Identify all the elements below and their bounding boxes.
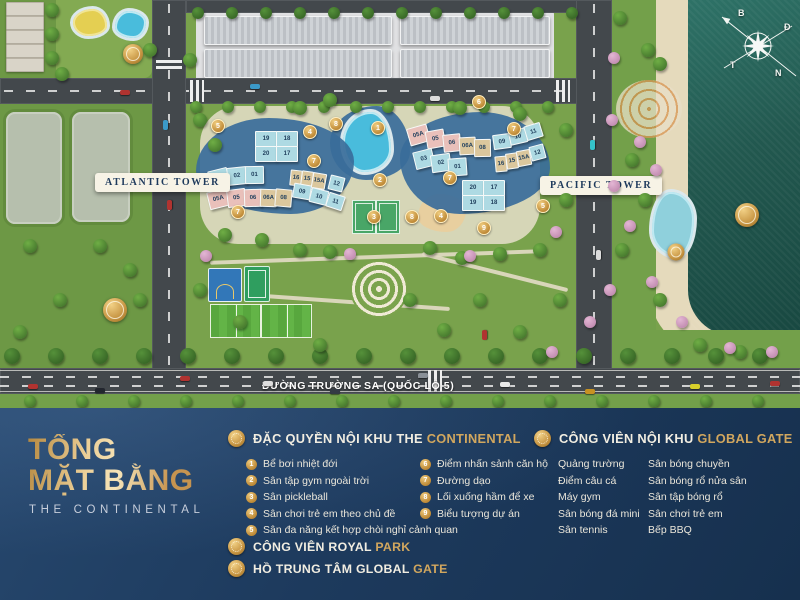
tree-icon	[323, 93, 337, 107]
compass-icon: B Đ N T	[712, 6, 798, 86]
tree-icon	[53, 293, 67, 307]
tree-icon	[293, 101, 307, 115]
labyrinth-plaza	[350, 260, 408, 318]
tree-icon	[403, 293, 417, 307]
unit-block-20: 20	[462, 180, 484, 196]
tree-icon	[550, 226, 562, 238]
tree-icon	[615, 243, 629, 257]
tree-icon	[620, 348, 636, 364]
amenity-marker-5: 5	[536, 199, 550, 213]
circular-plaza	[616, 80, 682, 138]
legend-item-number: 3	[246, 492, 257, 503]
amenity-marker-9: 9	[477, 221, 491, 235]
global-gate-column-1: Quảng trườngĐiểm câu cáMáy gymSân bóng đ…	[558, 458, 640, 536]
tree-icon	[553, 293, 567, 307]
poster-subtitle: THE CONTINENTAL	[29, 504, 205, 516]
unit-block-17: 17	[276, 146, 298, 162]
unit-block-19: 19	[462, 195, 484, 211]
blue-pool	[115, 11, 146, 38]
road-name-label: ĐƯỜNG TRƯỜNG SA (QUỐC LỘ 5)	[262, 380, 454, 392]
legend-item-label: Sân bóng rổ nửa sân	[648, 475, 747, 487]
tree-icon	[624, 220, 636, 232]
global-gate-column-2: Sân bóng chuyềnSân bóng rổ nửa sânSân tậ…	[648, 458, 747, 536]
tree-icon	[700, 395, 712, 407]
tree-icon	[498, 7, 510, 19]
tree-icon	[766, 346, 778, 358]
unit-block-08: 08	[474, 139, 491, 157]
tree-icon	[323, 245, 337, 259]
tree-icon	[444, 348, 460, 364]
tree-icon	[648, 395, 660, 407]
legend-item-label: Sân chơi trẻ em theo chủ đề	[263, 508, 395, 520]
section-global-gate-park-heading: CÔNG VIÊN NỘI KHU GLOBAL GATE	[534, 430, 793, 447]
warehouse	[204, 49, 392, 78]
tree-icon	[23, 239, 37, 253]
tree-icon	[218, 228, 232, 242]
coin-icon	[228, 538, 245, 555]
unit-block-17: 17	[483, 180, 505, 196]
amenity-marker-5: 5	[211, 119, 225, 133]
legend-item-label: Quảng trường	[558, 458, 640, 470]
tree-icon	[128, 395, 140, 407]
tree-icon	[233, 315, 247, 329]
compass-south: N	[775, 68, 782, 78]
unit-block-11: 11	[325, 192, 346, 212]
tree-icon	[646, 276, 658, 288]
tree-icon	[559, 123, 573, 137]
legend-item-number: 9	[420, 508, 431, 519]
right-vertical-road	[576, 0, 612, 394]
tree-icon	[584, 316, 596, 328]
legend-item-label: Sân chơi trẻ em	[648, 508, 747, 520]
legend-item-label: Bể bơi nhiệt đới	[263, 458, 337, 470]
tree-icon	[232, 395, 244, 407]
tree-icon	[45, 51, 59, 65]
tree-icon	[566, 7, 578, 19]
basketball-court	[208, 268, 242, 302]
tree-icon	[356, 348, 372, 364]
coin-icon	[228, 430, 245, 447]
tree-icon	[693, 338, 707, 352]
tree-icon	[608, 180, 620, 192]
tree-icon	[752, 395, 764, 407]
site-map: 19182017030201161515A1205A050606A0809101…	[0, 0, 800, 408]
tree-icon	[464, 250, 476, 262]
car-icon	[770, 381, 780, 386]
tree-icon	[638, 193, 652, 207]
car-icon	[430, 96, 440, 101]
legend-item-label: Sân pickleball	[263, 491, 328, 503]
amenity-marker-1: 1	[371, 121, 385, 135]
car-icon	[167, 200, 172, 210]
tree-icon	[255, 233, 269, 247]
roadside-grass	[0, 394, 800, 408]
rowhouse-block	[6, 58, 44, 72]
legend-item-label: Sân tennis	[558, 524, 640, 536]
yellow-pool	[73, 9, 107, 36]
car-icon	[180, 376, 190, 381]
tree-icon	[293, 243, 307, 257]
coin-icon	[534, 430, 551, 447]
rowhouse-block	[6, 30, 44, 44]
legend-item-label: Sân đa năng kết hợp chòi nghỉ cảnh quan	[263, 524, 458, 536]
tree-icon	[608, 52, 620, 64]
tree-icon	[400, 348, 416, 364]
unit-block-18: 18	[483, 195, 505, 211]
unit-block-19: 19	[255, 131, 277, 147]
car-icon	[482, 330, 487, 340]
tree-icon	[336, 395, 348, 407]
tree-icon	[76, 395, 88, 407]
atlantic-tower-label: ATLANTIC TOWER	[95, 173, 230, 192]
legend-item-number: 5	[246, 525, 257, 536]
tree-icon	[414, 101, 426, 113]
tree-icon	[362, 7, 374, 19]
legend-item: 7Đường dạo	[420, 475, 548, 487]
tree-icon	[4, 348, 20, 364]
tree-icon	[559, 193, 573, 207]
car-icon	[120, 90, 130, 95]
tree-icon	[641, 43, 655, 57]
tree-icon	[344, 248, 356, 260]
tree-icon	[143, 43, 157, 57]
tree-icon	[190, 101, 202, 113]
car-icon	[585, 389, 595, 394]
tree-icon	[45, 27, 59, 41]
tree-icon	[224, 348, 240, 364]
tree-icon	[437, 323, 451, 337]
tree-icon	[388, 395, 400, 407]
tree-icon	[193, 113, 207, 127]
legend-item-number: 1	[246, 459, 257, 470]
legend-item-label: Sân bóng chuyền	[648, 458, 747, 470]
tree-icon	[576, 348, 592, 364]
tree-icon	[493, 247, 507, 261]
car-icon	[500, 382, 510, 387]
car-icon	[250, 84, 260, 89]
tree-icon	[208, 138, 222, 152]
tree-icon	[284, 395, 296, 407]
amenity-marker-7: 7	[443, 171, 457, 185]
legend-item-number: 2	[246, 475, 257, 486]
tree-icon	[653, 293, 667, 307]
tree-icon	[350, 101, 362, 113]
tree-icon	[492, 395, 504, 407]
tree-icon	[313, 338, 327, 352]
crosswalk	[190, 80, 204, 102]
legend-item-label: Điểm câu cá	[558, 475, 640, 487]
legend-item: 6Điểm nhấn sảnh căn hộ	[420, 458, 548, 470]
car-icon	[590, 140, 595, 150]
tree-icon	[92, 348, 108, 364]
tree-icon	[222, 101, 234, 113]
tree-icon	[464, 7, 476, 19]
compass-west: T	[730, 60, 736, 70]
tree-icon	[24, 395, 36, 407]
legend-item: 9Biểu tượng dự án	[420, 508, 548, 520]
section-central-lake: HỒ TRUNG TÂM GLOBAL GATE	[228, 560, 448, 577]
car-icon	[95, 388, 105, 393]
tree-icon	[93, 239, 107, 253]
coin-icon	[228, 560, 245, 577]
project-coin-icon	[668, 244, 685, 261]
legend-item-label: Điểm nhấn sảnh căn hộ	[437, 458, 548, 470]
tree-icon	[180, 348, 196, 364]
tree-icon	[193, 283, 207, 297]
legend-item-label: Đường dạo	[437, 475, 491, 487]
amenity-marker-7: 7	[507, 122, 521, 136]
tree-icon	[613, 11, 627, 25]
compass-north: B	[738, 8, 745, 18]
legend-item-label: Biểu tượng dự án	[437, 508, 520, 520]
project-coin-icon	[123, 44, 143, 64]
tree-icon	[676, 316, 688, 328]
legend-item-number: 4	[246, 508, 257, 519]
tree-icon	[123, 263, 137, 277]
tree-icon	[596, 395, 608, 407]
tree-icon	[328, 7, 340, 19]
unit-block-18: 18	[276, 131, 298, 147]
tree-icon	[488, 348, 504, 364]
tree-icon	[724, 342, 736, 354]
car-icon	[330, 389, 340, 394]
legend-item-label: Sân bóng đá mini	[558, 508, 640, 520]
tree-icon	[13, 325, 27, 339]
tree-icon	[664, 348, 680, 364]
warehouse	[400, 49, 550, 78]
tree-icon	[180, 395, 192, 407]
compass-east: Đ	[784, 22, 791, 32]
car-icon	[596, 250, 601, 260]
amenity-marker-6: 6	[472, 95, 486, 109]
tree-icon	[513, 107, 527, 121]
amenity-marker-8: 8	[405, 210, 419, 224]
tree-icon	[192, 7, 204, 19]
unit-block-01: 01	[245, 166, 264, 184]
tree-icon	[430, 7, 442, 19]
tree-icon	[254, 101, 266, 113]
tree-icon	[200, 250, 212, 262]
tree-icon	[226, 7, 238, 19]
tree-icon	[55, 67, 69, 81]
tree-icon	[294, 7, 306, 19]
tree-icon	[396, 7, 408, 19]
vacant-plot	[6, 112, 62, 224]
mini-football-field	[261, 304, 312, 338]
middle-road	[0, 78, 612, 104]
tree-icon	[268, 348, 284, 364]
tree-icon	[604, 284, 616, 296]
car-icon	[418, 373, 428, 378]
rowhouse-block	[6, 2, 44, 16]
tree-icon	[650, 164, 662, 176]
tree-icon	[542, 101, 554, 113]
legend-item-number: 6	[420, 459, 431, 470]
tree-icon	[606, 114, 618, 126]
unit-block-11: 11	[523, 122, 544, 141]
tree-icon	[546, 346, 558, 358]
amenity-marker-3: 3	[367, 210, 381, 224]
amenity-marker-7: 7	[231, 205, 245, 219]
legend-item-number: 8	[420, 492, 431, 503]
tree-icon	[532, 7, 544, 19]
amenity-marker-7: 7	[307, 154, 321, 168]
tree-icon	[453, 101, 467, 115]
privileges-column-2: 6Điểm nhấn sảnh căn hộ7Đường dạo8Lối xuố…	[420, 458, 548, 520]
car-icon	[263, 381, 273, 386]
tree-icon	[513, 325, 527, 339]
tree-icon	[634, 136, 646, 148]
tree-icon	[183, 53, 197, 67]
legend-item-label: Lối xuống hầm để xe	[437, 491, 534, 503]
unit-block-08: 08	[274, 188, 293, 207]
legend-item-label: Sân tập gym ngoài trời	[263, 475, 369, 487]
section-royal-park: CÔNG VIÊN ROYAL PARK	[228, 538, 410, 555]
tree-icon	[708, 348, 724, 364]
crosswalk	[556, 80, 570, 102]
rowhouse-block	[6, 44, 44, 58]
project-coin-icon	[103, 298, 127, 322]
amenity-marker-4: 4	[434, 209, 448, 223]
warehouse	[400, 16, 550, 45]
legend-item-label: Máy gym	[558, 491, 640, 503]
project-coin-icon	[735, 203, 759, 227]
amenity-marker-2: 2	[373, 173, 387, 187]
tree-icon	[653, 57, 667, 71]
tree-icon	[440, 395, 452, 407]
tree-icon	[133, 293, 147, 307]
car-icon	[28, 384, 38, 389]
rowhouse-block	[6, 16, 44, 30]
unit-block-20: 20	[255, 146, 277, 162]
tree-icon	[260, 7, 272, 19]
tree-icon	[473, 293, 487, 307]
tree-icon	[625, 153, 639, 167]
tree-icon	[423, 241, 437, 255]
car-icon	[690, 384, 700, 389]
amenity-marker-4: 4	[303, 125, 317, 139]
unit-block-12: 12	[327, 174, 345, 192]
pacific-tower-units: 05A050606A08091011030201161515A122017191…	[398, 116, 548, 216]
car-icon	[163, 120, 168, 130]
legend-item-number: 7	[420, 475, 431, 486]
legend-item-label: Bếp BBQ	[648, 524, 747, 536]
poster-title: TỔNG MẶT BẰNG	[28, 434, 194, 496]
master-plan-poster: 19182017030201161515A1205A050606A0809101…	[0, 0, 800, 600]
tree-icon	[544, 395, 556, 407]
vacant-plot	[72, 112, 130, 222]
section-privileges-heading: ĐẶC QUYỀN NỘI KHU THE CONTINENTAL	[228, 430, 521, 447]
legend-item-label: Sân tập bóng rổ	[648, 491, 747, 503]
tree-icon	[382, 101, 394, 113]
legend-item: 5Sân đa năng kết hợp chòi nghỉ cảnh quan	[246, 524, 458, 536]
unit-block-12: 12	[528, 143, 546, 161]
legend-panel: TỔNG MẶT BẰNG THE CONTINENTAL ĐẶC QUYỀN …	[0, 408, 800, 600]
amenity-marker-8: 8	[329, 117, 343, 131]
legend-item: 8Lối xuống hầm để xe	[420, 491, 548, 503]
crosswalk	[156, 60, 182, 72]
tree-icon	[45, 3, 59, 17]
tennis-court	[244, 266, 270, 302]
tree-icon	[533, 243, 547, 257]
warehouse	[204, 16, 392, 45]
tree-icon	[48, 348, 64, 364]
tree-icon	[136, 348, 152, 364]
